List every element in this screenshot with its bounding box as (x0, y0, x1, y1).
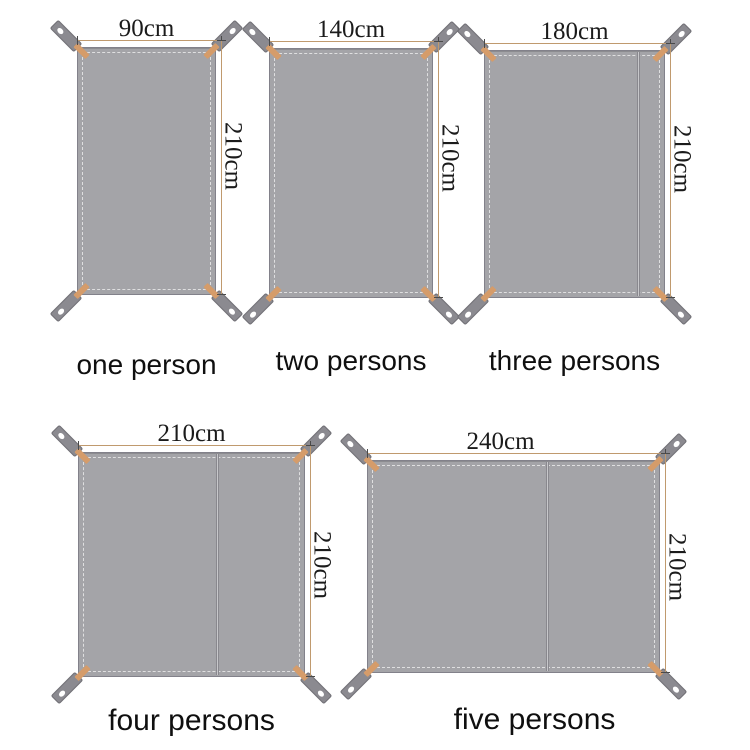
size-figure-five-persons: 240cm 210cm five persons (367, 460, 660, 673)
grommet-hole-icon (346, 439, 354, 447)
figure-caption: three persons (489, 346, 660, 377)
center-seam (637, 52, 640, 296)
groundsheet (367, 460, 660, 673)
grommet-hole-icon (317, 431, 325, 439)
width-dimension-label: 90cm (119, 16, 175, 42)
height-dimension-label: 210cm (663, 532, 689, 600)
grommet-hole-icon (463, 310, 471, 318)
grommet-hole-icon (228, 307, 236, 315)
width-dimension-label: 210cm (157, 421, 225, 447)
grommet-hole-icon (672, 439, 680, 447)
size-figure-two-persons: 140cm 210cm two persons (269, 48, 433, 298)
grommet-hole-icon (56, 26, 64, 34)
width-dimension-label: 240cm (466, 429, 534, 455)
size-chart-canvas: 90cm 210cm one person 140cm 210cm two pe… (0, 0, 750, 750)
figure-caption: two persons (276, 346, 427, 377)
grommet-hole-icon (463, 29, 471, 37)
height-dimension-label: 210cm (219, 122, 245, 190)
figure-caption: four persons (108, 704, 275, 737)
grommet-hole-icon (672, 685, 680, 693)
groundsheet (484, 50, 665, 298)
grommet-hole-icon (677, 310, 685, 318)
height-dimension-label: 210cm (668, 125, 694, 193)
grommet-hole-icon (346, 685, 354, 693)
grommet-hole-icon (317, 689, 325, 697)
grommet-hole-icon (248, 27, 256, 35)
grommet-hole-icon (56, 307, 64, 315)
grommet-hole-icon (445, 27, 453, 35)
groundsheet (78, 452, 305, 677)
grommet-hole-icon (57, 689, 65, 697)
width-dimension-label: 140cm (317, 17, 385, 43)
figure-caption: one person (76, 350, 216, 381)
center-seam (216, 454, 219, 675)
height-dimension-label: 210cm (436, 124, 462, 192)
figure-caption: five persons (454, 703, 616, 736)
grommet-hole-icon (248, 310, 256, 318)
groundsheet (269, 48, 433, 298)
groundsheet (77, 47, 216, 295)
width-dimension-label: 180cm (540, 19, 608, 45)
center-seam (546, 462, 549, 671)
grommet-hole-icon (677, 29, 685, 37)
size-figure-three-persons: 180cm 210cm three persons (484, 50, 665, 298)
grommet-hole-icon (57, 431, 65, 439)
grommet-hole-icon (445, 310, 453, 318)
size-figure-one-person: 90cm 210cm one person (77, 47, 216, 295)
grommet-hole-icon (228, 26, 236, 34)
height-dimension-label: 210cm (308, 530, 334, 598)
size-figure-four-persons: 210cm 210cm four persons (78, 452, 305, 677)
